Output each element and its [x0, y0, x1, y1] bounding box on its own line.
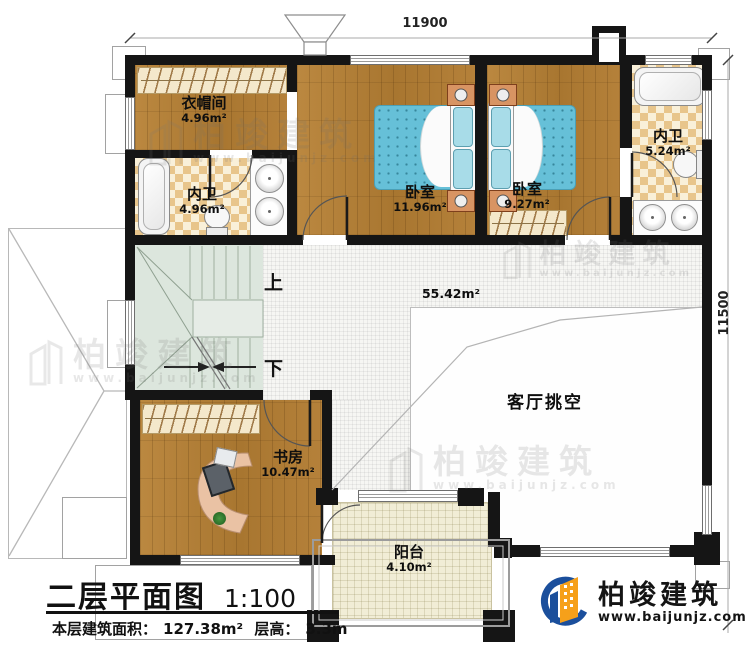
- floor-height-label: 层高：: [254, 620, 299, 638]
- label-living-void: 客厅挑空: [490, 394, 600, 414]
- room-area: 4.10m²: [364, 561, 454, 574]
- page-title: 二层平面图: [46, 572, 206, 616]
- room-area: 11.96m²: [375, 201, 465, 214]
- stair-direction-arrows: [164, 362, 256, 372]
- company-logo: 柏竣建筑 www.baijunjz.com: [538, 571, 747, 635]
- logo-name: 柏竣建筑: [598, 581, 747, 611]
- label-study: 书房 10.47m²: [243, 449, 333, 479]
- room-area: 4.96m²: [157, 203, 247, 216]
- room-name: 阳台: [364, 544, 454, 561]
- label-bath-right: 内卫 5.24m²: [623, 128, 713, 158]
- label-bedroom-left: 卧室 11.96m²: [375, 184, 465, 214]
- label-bedroom-right: 卧室 9.27m²: [482, 181, 572, 211]
- floor-area-label: 本层建筑面积：: [52, 620, 157, 638]
- room-area: 5.24m²: [623, 145, 713, 158]
- plan-stats: 本层建筑面积：127.38m² 层高：3.3m: [52, 618, 354, 639]
- logo-url: www.baijunjz.com: [598, 610, 747, 625]
- room-area: 10.47m²: [243, 466, 333, 479]
- stairs-up-label: 上: [264, 268, 283, 295]
- roof-ridge-lines: [9, 229, 125, 556]
- plan-scale: 1:100: [224, 584, 296, 613]
- floor-plan: 11900 11500 衣帽间 4.96m² 内卫 4.96m² 卧室 11.9…: [0, 0, 750, 648]
- title-underline: [46, 611, 338, 614]
- floor-area-value: 127.38m²: [163, 620, 243, 638]
- stair-landing: [193, 300, 263, 337]
- label-hall-area: 55.42m²: [406, 287, 496, 301]
- roof-funnel: [285, 15, 345, 55]
- floor-height-value: 3.3m: [305, 620, 347, 638]
- room-name: 内卫: [623, 128, 713, 145]
- room-name: 卧室: [482, 181, 572, 198]
- label-balcony: 阳台 4.10m²: [364, 544, 454, 574]
- room-area: 9.27m²: [482, 198, 572, 211]
- room-name: 客厅挑空: [490, 394, 600, 414]
- room-name: 内卫: [157, 186, 247, 203]
- dimension-right: 11500: [717, 283, 733, 343]
- label-bath-left: 内卫 4.96m²: [157, 186, 247, 216]
- room-area: 55.42m²: [406, 287, 496, 301]
- plant-icon: [213, 512, 226, 525]
- dimension-top: 11900: [390, 16, 460, 31]
- room-name: 书房: [243, 449, 333, 466]
- logo-building-icon: [538, 571, 590, 635]
- label-cloakroom: 衣帽间 4.96m²: [159, 95, 249, 125]
- room-name: 卧室: [375, 184, 465, 201]
- title-block: 二层平面图 1:100: [46, 572, 296, 616]
- stair-rail: [192, 337, 230, 389]
- room-area: 4.96m²: [159, 112, 249, 125]
- room-name: 衣帽间: [159, 95, 249, 112]
- stairs-down-label: 下: [264, 354, 283, 381]
